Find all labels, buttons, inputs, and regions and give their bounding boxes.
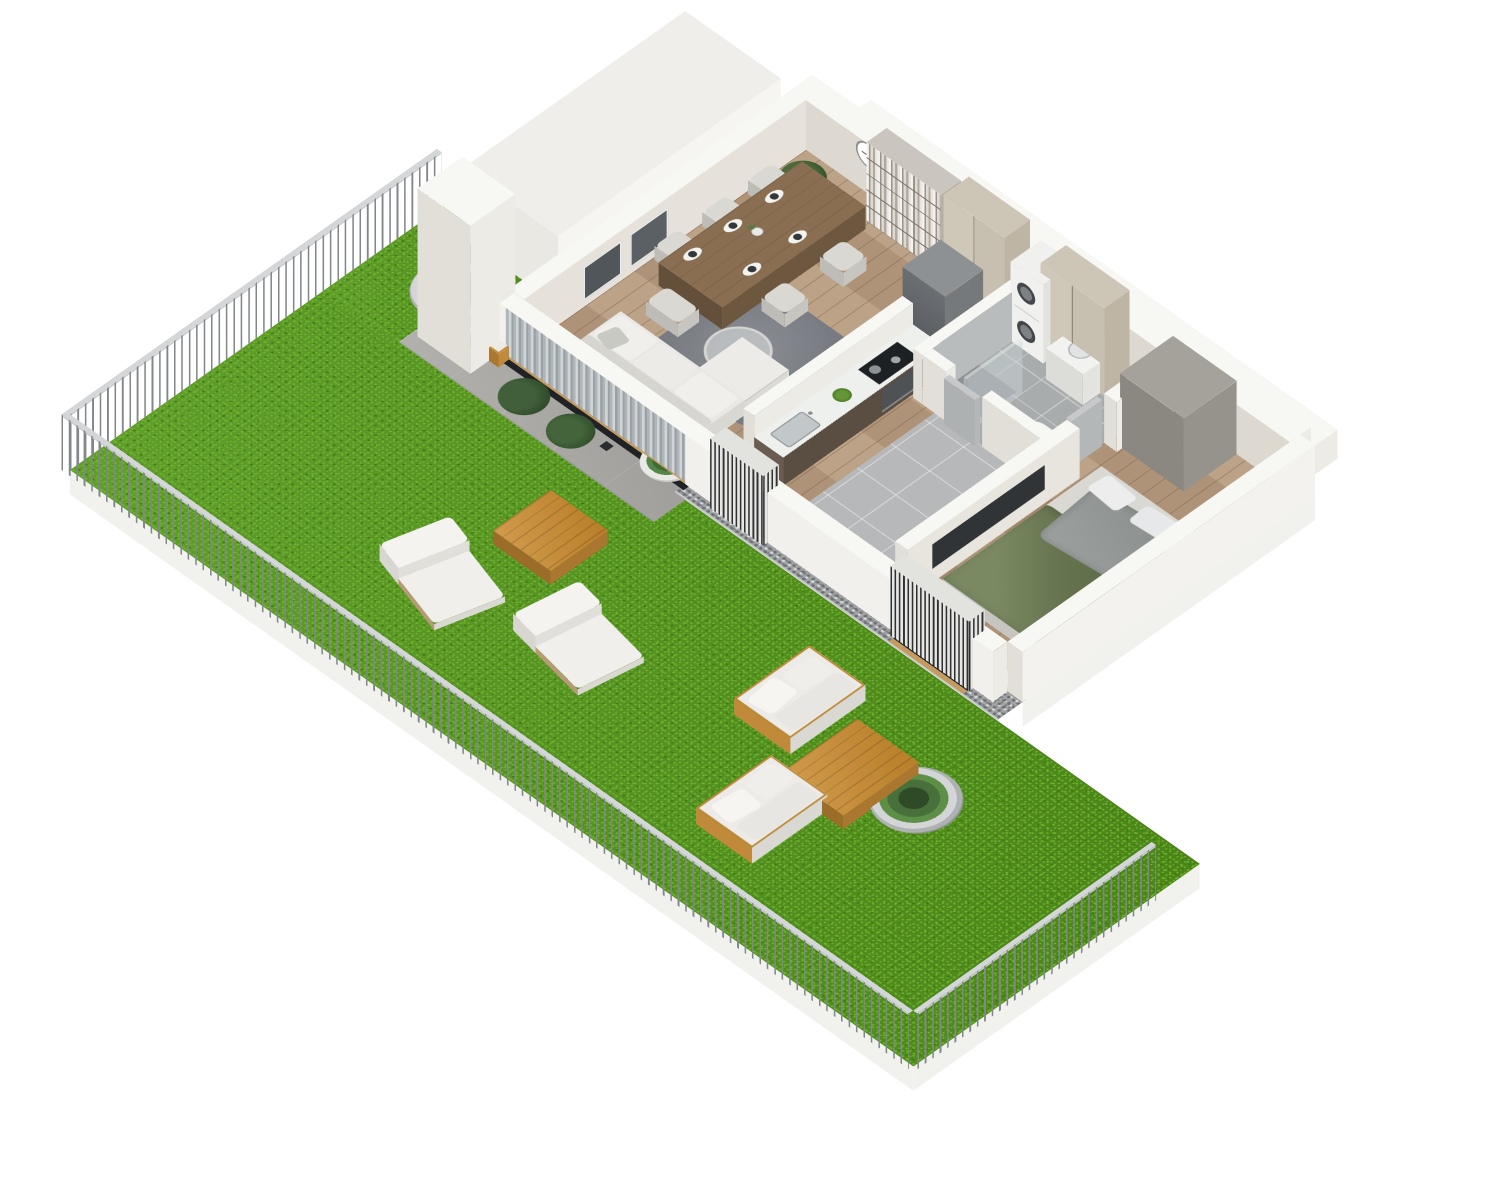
dryer-door <box>1017 278 1035 309</box>
place-setting <box>785 228 810 246</box>
place-setting <box>720 217 745 235</box>
place-setting <box>739 260 764 278</box>
plate <box>727 221 740 230</box>
place-setting <box>762 187 787 205</box>
plate <box>791 232 804 241</box>
isometric-scene <box>70 0 1500 1070</box>
plate <box>768 192 781 201</box>
pot <box>867 364 884 376</box>
face <box>1104 393 1117 452</box>
floorplan-render <box>0 0 1500 1178</box>
face <box>975 396 980 446</box>
green-bowl <box>828 385 856 405</box>
pot <box>889 355 903 365</box>
plate <box>746 265 759 274</box>
place-setting <box>680 245 705 263</box>
plate <box>686 250 699 259</box>
face <box>913 348 923 405</box>
